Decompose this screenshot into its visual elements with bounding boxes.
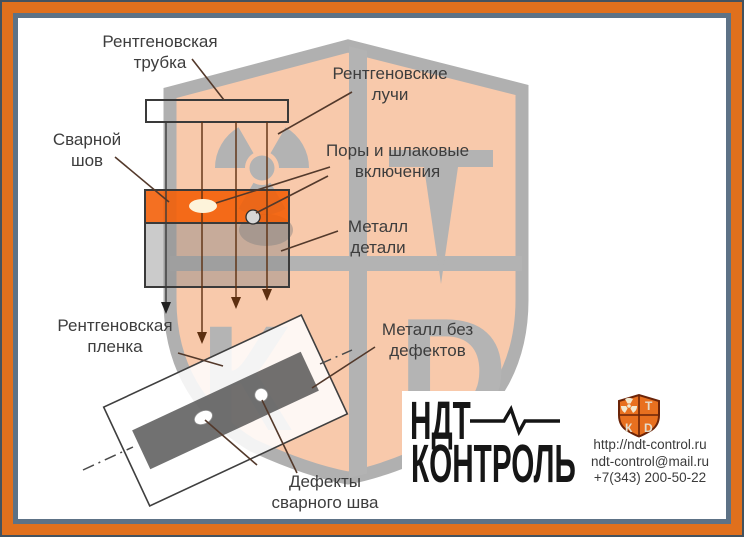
label-no-defects-line2: дефектов xyxy=(370,340,485,361)
label-pores-line1: Поры и шлаковые xyxy=(315,140,480,161)
label-xrays: Рентгеновские лучи xyxy=(315,63,465,105)
mini-letter-d: D xyxy=(644,421,653,435)
label-weld-seam-line1: Сварной xyxy=(32,129,142,150)
company-shield-icon: Т К D xyxy=(616,392,662,438)
phone-number: +7(343) 200-50-22 xyxy=(570,470,730,487)
label-film-line1: Рентгеновская xyxy=(40,315,190,336)
heartbeat-pulse-icon xyxy=(470,404,562,438)
label-weld-seam: Сварной шов xyxy=(32,129,142,171)
label-xrays-line2: лучи xyxy=(315,84,465,105)
label-pores-line2: включения xyxy=(315,161,480,182)
label-film: Рентгеновская пленка xyxy=(40,315,190,357)
label-weld-defects-line1: Дефекты xyxy=(255,471,395,492)
pore-defect xyxy=(189,199,217,213)
label-film-line2: пленка xyxy=(40,336,190,357)
label-weld-seam-line2: шов xyxy=(32,150,142,171)
website-url: http://ndt-control.ru xyxy=(570,437,730,454)
radiographic-testing-diagram: К D xyxy=(0,0,744,537)
label-metal-line1: Металл xyxy=(338,216,418,237)
label-xray-tube-line2: трубка xyxy=(80,52,240,73)
label-no-defects-line1: Металл без xyxy=(370,319,485,340)
mini-letter-k: К xyxy=(625,421,633,435)
label-pores: Поры и шлаковые включения xyxy=(315,140,480,182)
label-no-defects: Металл без дефектов xyxy=(370,319,485,361)
email-address: ndt-control@mail.ru xyxy=(570,454,730,471)
label-metal-line2: детали xyxy=(338,237,418,258)
label-xrays-line1: Рентгеновские xyxy=(315,63,465,84)
label-xray-tube: Рентгеновская трубка xyxy=(80,31,240,73)
label-weld-defects-line2: сварного шва xyxy=(255,492,395,513)
label-weld-defects: Дефекты сварного шва xyxy=(255,471,395,513)
label-xray-tube-line1: Рентгеновская xyxy=(80,31,240,52)
label-metal: Металл детали xyxy=(338,216,418,258)
mini-letter-t: Т xyxy=(645,399,653,413)
contact-block: http://ndt-control.ru ndt-control@mail.r… xyxy=(570,437,730,487)
